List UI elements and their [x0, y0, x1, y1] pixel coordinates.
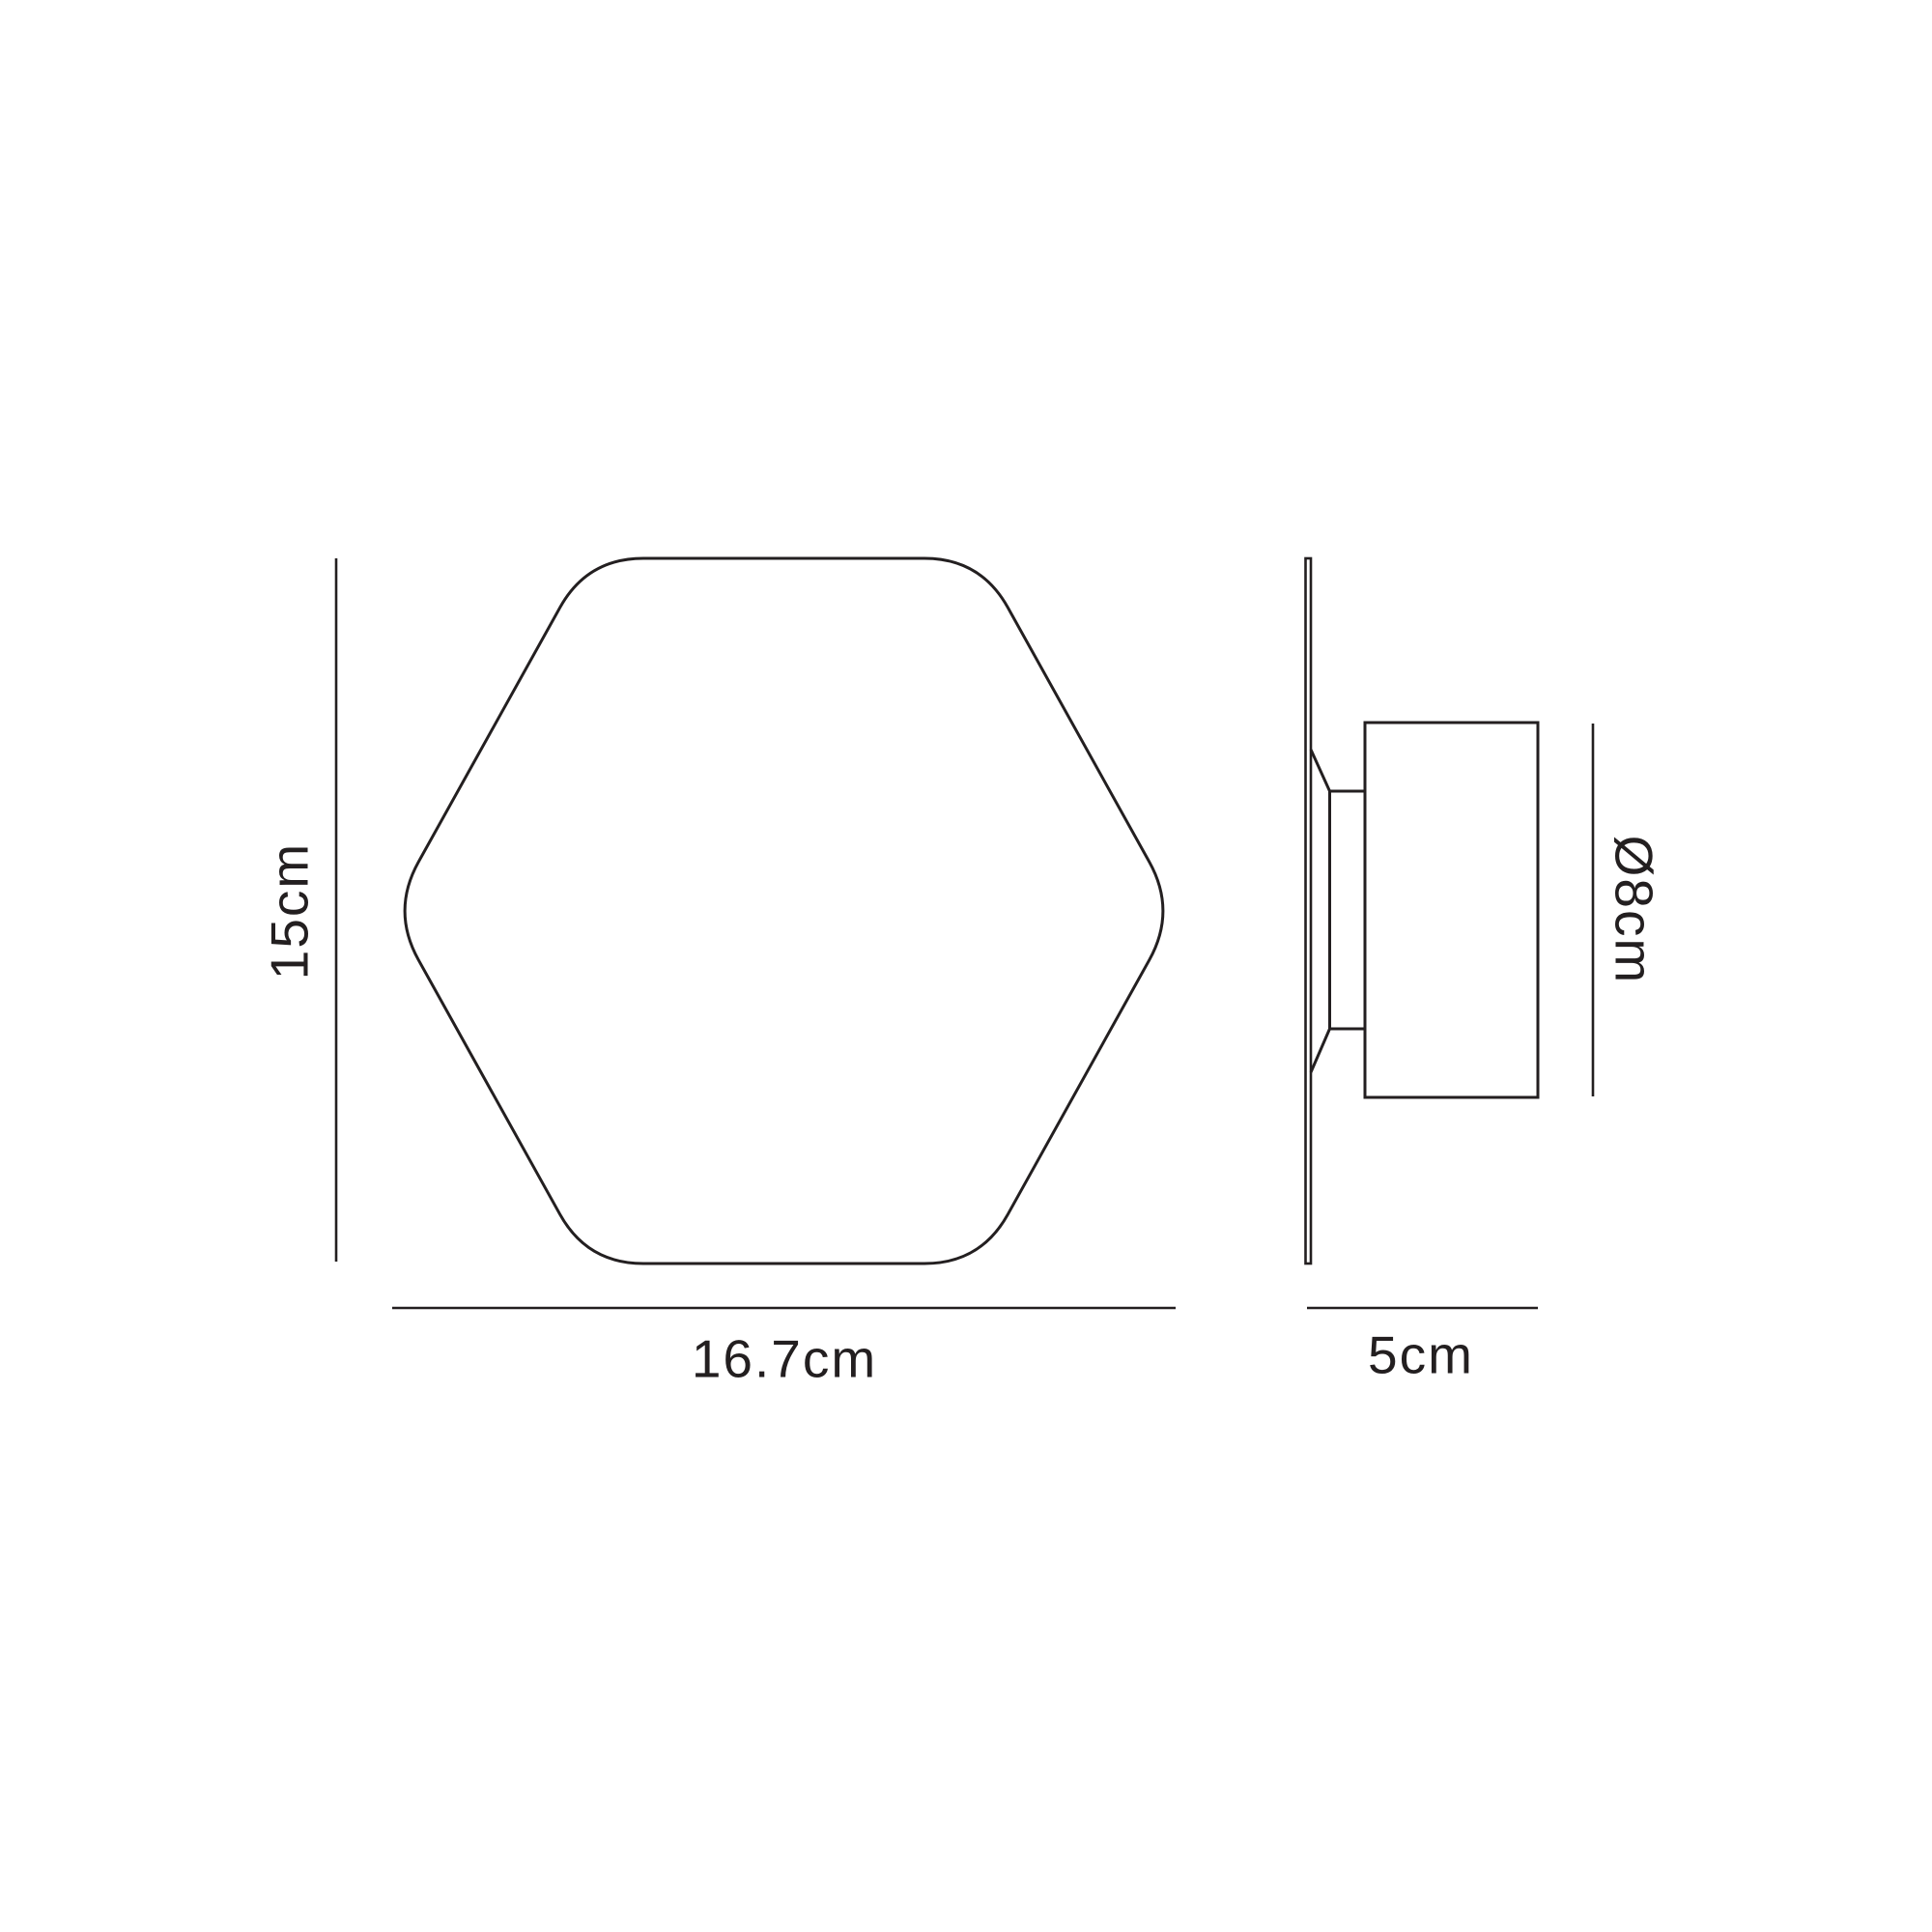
dimension-diagram: 15cm 16.7cm Ø8cm 5cm	[0, 0, 1932, 1932]
front-hexagon-outline	[405, 558, 1163, 1264]
side-neck	[1330, 791, 1366, 1029]
front-width-label: 16.7cm	[692, 1333, 877, 1386]
side-cone	[1311, 750, 1330, 1072]
side-diameter-label: Ø8cm	[1607, 836, 1661, 985]
side-depth-label: 5cm	[1368, 1329, 1474, 1382]
side-cylinder-body	[1365, 723, 1538, 1097]
side-backplate	[1306, 558, 1312, 1264]
front-height-label: 15cm	[264, 842, 317, 980]
